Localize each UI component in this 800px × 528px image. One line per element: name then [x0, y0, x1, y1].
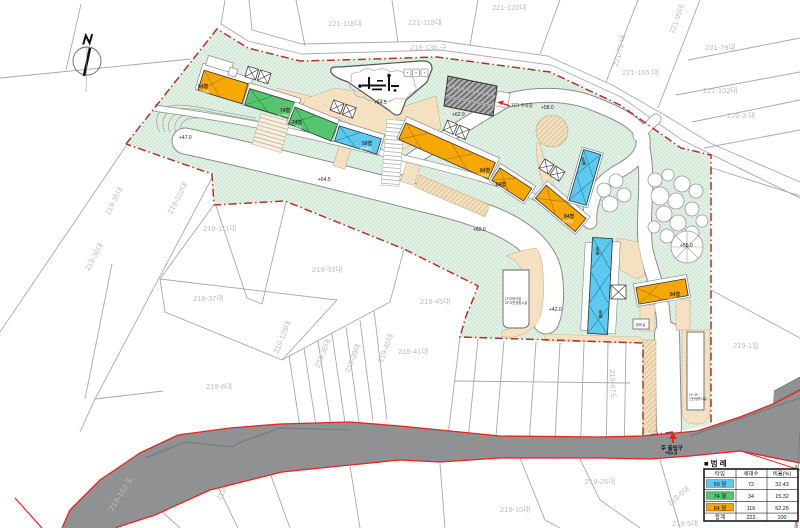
- svg-text:지하 주차장: 지하 주차장: [511, 102, 533, 109]
- svg-text:합계: 합계: [715, 513, 725, 521]
- svg-text:219-26대: 219-26대: [585, 477, 615, 486]
- svg-text:15.32: 15.32: [775, 494, 789, 500]
- svg-text:219-67도: 219-67도: [608, 369, 618, 400]
- svg-text:(17세대): (17세대): [290, 125, 302, 130]
- svg-text:+62.0: +62.0: [473, 227, 486, 233]
- svg-text:74 형: 74 형: [714, 493, 726, 500]
- svg-text:2F:주민공동시설: 2F:주민공동시설: [505, 300, 527, 305]
- svg-text:+64.5: +64.5: [318, 177, 331, 183]
- svg-text:34: 34: [748, 494, 754, 500]
- svg-text:219-111대: 219-111대: [203, 224, 236, 233]
- svg-text:비율(%): 비율(%): [773, 470, 792, 478]
- svg-text:219-5대: 219-5대: [672, 519, 698, 528]
- svg-text:52.25: 52.25: [775, 506, 789, 512]
- svg-text:59형: 59형: [595, 247, 601, 256]
- svg-text:219-45대: 219-45대: [420, 297, 450, 306]
- svg-text:219-136 구: 219-136 구: [410, 43, 447, 52]
- svg-text:(17세대): (17세대): [278, 113, 290, 118]
- svg-text:근린생활시설: 근린생활시설: [689, 396, 707, 401]
- svg-text:219-41대: 219-41대: [398, 347, 428, 356]
- svg-text:221-165 대: 221-165 대: [622, 68, 659, 77]
- svg-text:220-3 대: 220-3 대: [727, 111, 755, 120]
- svg-text:84형: 84형: [198, 83, 209, 90]
- svg-text:(36세대): (36세대): [198, 89, 210, 94]
- svg-text:59형: 59형: [598, 310, 604, 319]
- svg-text:219-37대: 219-37대: [193, 294, 223, 303]
- svg-text:72: 72: [748, 482, 754, 488]
- svg-text:59 형: 59 형: [714, 481, 726, 488]
- svg-text:32.43: 32.43: [775, 482, 789, 488]
- svg-text:219-10대: 219-10대: [500, 505, 530, 514]
- svg-text:타입: 타입: [715, 470, 725, 478]
- svg-text:221-118대: 221-118대: [328, 19, 362, 28]
- svg-text:116: 116: [747, 506, 756, 512]
- svg-text:+42.0: +42.0: [549, 307, 562, 313]
- svg-text:■ 범 례: ■ 범 례: [704, 458, 727, 468]
- svg-text:100: 100: [778, 515, 787, 521]
- svg-text:84 형: 84 형: [714, 505, 726, 512]
- svg-text:(26세대): (26세대): [478, 173, 490, 178]
- svg-text:세대수: 세대수: [744, 470, 759, 478]
- svg-text:+62.0: +62.0: [452, 112, 465, 118]
- svg-text:경비실: 경비실: [636, 322, 646, 327]
- svg-text:219-33대: 219-33대: [312, 265, 342, 274]
- svg-text:+50.8: +50.8: [665, 451, 677, 457]
- svg-text:(26세대): (26세대): [668, 297, 680, 302]
- svg-text:221-79대: 221-79대: [705, 43, 735, 52]
- svg-text:+58.0: +58.0: [541, 105, 554, 111]
- svg-text:221-120대: 221-120대: [492, 3, 527, 12]
- svg-text:+64.5: +64.5: [374, 100, 387, 106]
- svg-text:(26세대): (26세대): [494, 187, 506, 192]
- svg-text:219-8대: 219-8대: [206, 382, 232, 391]
- svg-text:(26세대): (26세대): [562, 219, 574, 224]
- svg-text:222: 222: [747, 515, 756, 521]
- svg-text:+47.0: +47.0: [179, 135, 192, 141]
- svg-text:219-1임: 219-1임: [733, 341, 759, 350]
- svg-text:221-102대: 221-102대: [703, 86, 738, 95]
- svg-text:221-119대: 221-119대: [408, 18, 442, 27]
- svg-text:(36세대): (36세대): [360, 146, 372, 151]
- svg-text:+55.0: +55.0: [680, 243, 693, 249]
